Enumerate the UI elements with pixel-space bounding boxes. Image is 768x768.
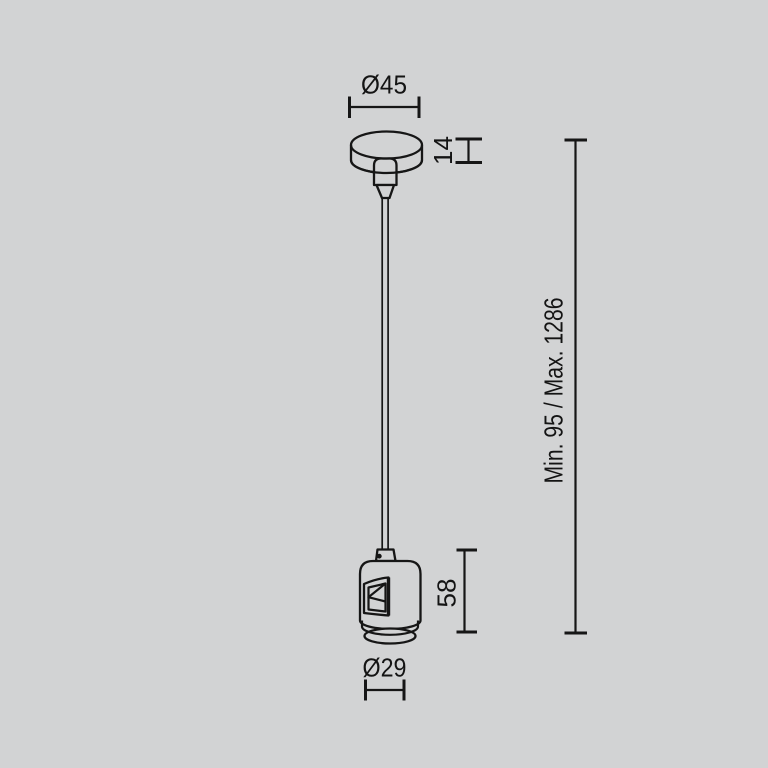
dim-label-suspension-length: Min. 95 / Max. 1286	[538, 298, 568, 484]
ferrule-set-screw	[377, 554, 382, 559]
dim-label-canopy-height: 14	[428, 136, 458, 165]
dim-label-canopy-diameter: Ø45	[361, 70, 407, 100]
dimension-drawing: Ø45 14 Min. 95 / Max. 1286 58 Ø29	[0, 0, 768, 768]
holder-bottom-face	[365, 629, 416, 644]
dim-label-holder-height: 58	[431, 579, 461, 608]
dim-label-holder-diameter: Ø29	[363, 653, 407, 683]
cable-lock-window	[364, 578, 389, 616]
